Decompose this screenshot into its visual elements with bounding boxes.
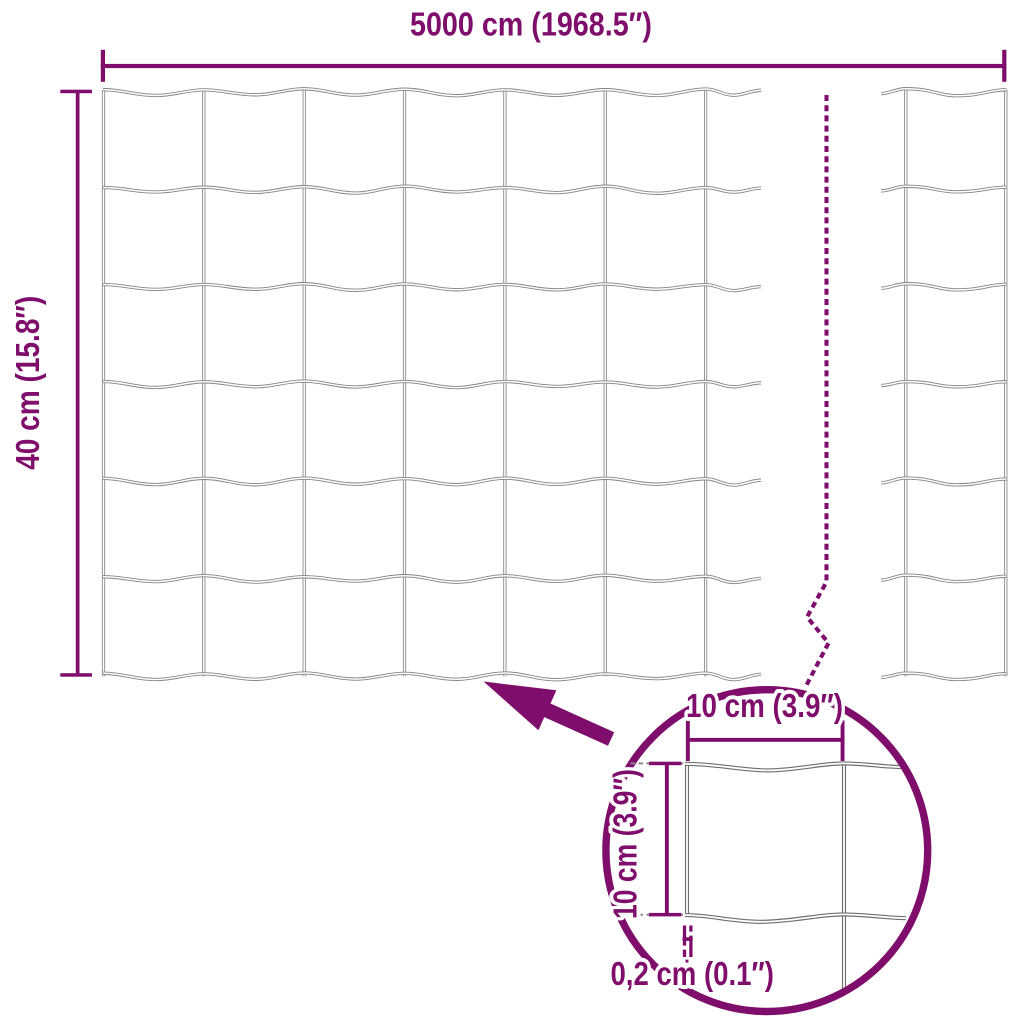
- svg-text:10 cm (3.9″): 10 cm (3.9″): [686, 687, 843, 724]
- svg-text:10 cm (3.9″): 10 cm (3.9″): [607, 769, 644, 919]
- svg-text:0,2 cm (0.1″): 0,2 cm (0.1″): [610, 955, 774, 992]
- svg-text:5000 cm (1968.5″): 5000 cm (1968.5″): [410, 5, 652, 42]
- svg-text:40 cm (15.8″): 40 cm (15.8″): [9, 296, 46, 470]
